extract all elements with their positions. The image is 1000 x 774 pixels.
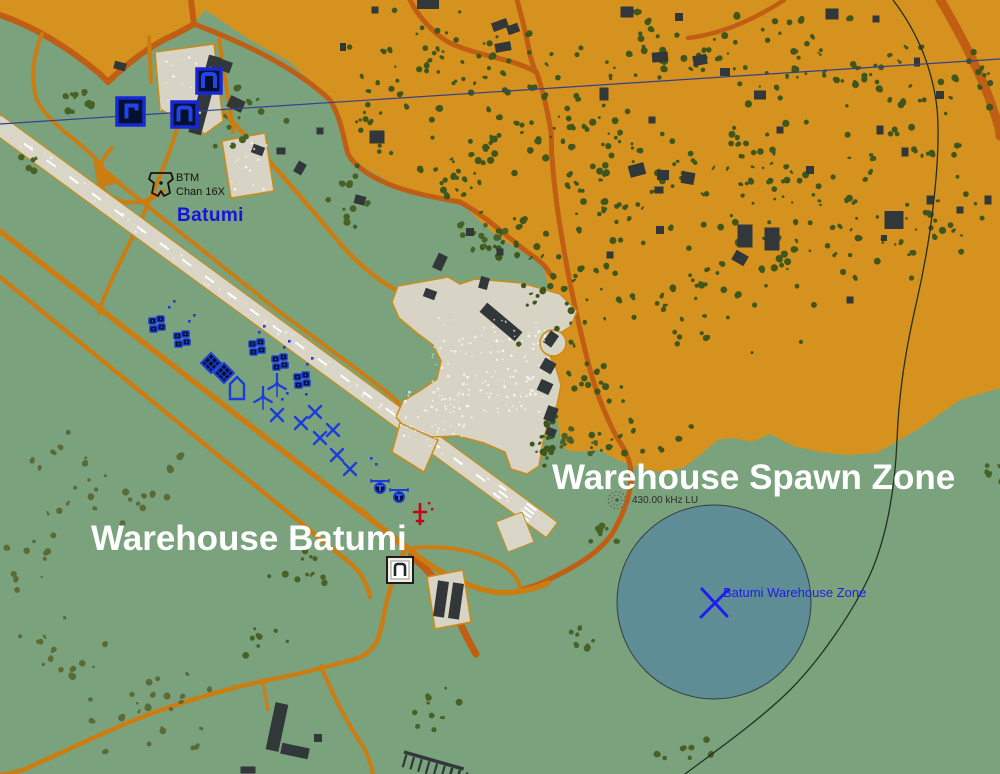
building bbox=[877, 126, 884, 135]
building bbox=[241, 767, 256, 774]
building bbox=[885, 211, 904, 229]
hangar-pad bbox=[427, 570, 471, 629]
building bbox=[656, 226, 664, 234]
building bbox=[370, 131, 385, 144]
building bbox=[652, 51, 669, 62]
building bbox=[607, 252, 614, 259]
building bbox=[417, 0, 439, 9]
building bbox=[738, 225, 753, 248]
warehouse-depot-n-icon[interactable] bbox=[197, 69, 221, 93]
building bbox=[927, 196, 934, 205]
building bbox=[777, 127, 784, 134]
building bbox=[340, 43, 346, 51]
building bbox=[902, 148, 909, 157]
building bbox=[675, 13, 683, 21]
building bbox=[936, 91, 944, 99]
warehouse-spawn-zone-label: Warehouse Spawn Zone bbox=[552, 458, 955, 497]
map-canvas[interactable]: Batumi Warehouse Zone 430.00 kHz LU BTM … bbox=[0, 0, 1000, 774]
building bbox=[765, 228, 780, 251]
warehouse-batumi-label: Warehouse Batumi bbox=[91, 519, 407, 558]
building bbox=[372, 7, 379, 14]
mission-editor-map: Batumi Warehouse Zone 430.00 kHz LU BTM … bbox=[0, 0, 1000, 774]
building bbox=[754, 91, 766, 100]
building bbox=[681, 171, 696, 185]
building bbox=[826, 9, 839, 20]
warehouse-depot-gamma-icon[interactable] bbox=[117, 98, 144, 125]
warehouse-depot-n-icon[interactable] bbox=[172, 102, 197, 127]
building bbox=[806, 166, 814, 174]
building bbox=[277, 148, 286, 155]
building bbox=[621, 7, 634, 18]
building bbox=[655, 187, 664, 194]
building bbox=[881, 235, 887, 241]
building bbox=[314, 734, 322, 742]
building bbox=[657, 170, 669, 180]
building bbox=[497, 249, 504, 256]
zone-name-label: Batumi Warehouse Zone bbox=[723, 585, 866, 600]
building bbox=[317, 128, 324, 135]
building bbox=[847, 297, 854, 304]
building bbox=[720, 68, 730, 76]
secondary-pad bbox=[222, 133, 274, 198]
building bbox=[873, 16, 880, 23]
warehouse-icon[interactable] bbox=[387, 557, 413, 583]
tacan-channel-label: Chan 16X bbox=[176, 186, 226, 198]
building bbox=[985, 196, 992, 205]
building bbox=[914, 58, 920, 67]
building bbox=[649, 117, 656, 124]
tacan-id-label: BTM bbox=[176, 172, 199, 184]
airport-name-label: Batumi bbox=[177, 205, 244, 226]
building bbox=[466, 228, 474, 236]
building bbox=[600, 88, 609, 101]
building bbox=[957, 207, 964, 214]
